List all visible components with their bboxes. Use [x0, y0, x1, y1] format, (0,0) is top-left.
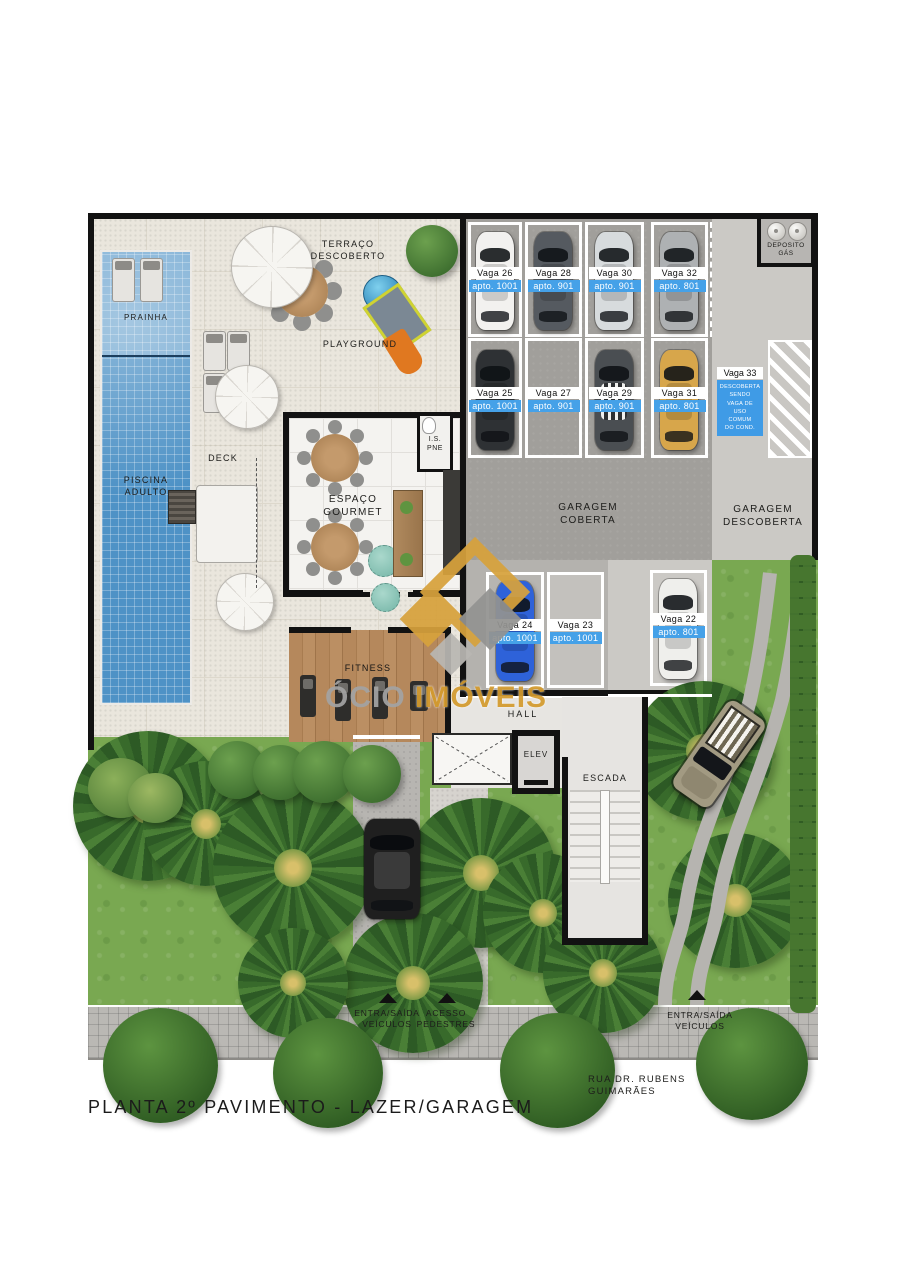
stair-wall-bottom — [562, 938, 648, 945]
exercise-bench — [410, 681, 428, 711]
parking-spot-29: Vaga 29apto. 901 — [585, 338, 644, 458]
spot-apartment: apto. 801 — [654, 280, 706, 292]
spot-apartment: apto. 1001 — [550, 632, 602, 644]
spot-apartment: apto. 901 — [528, 400, 580, 412]
gourmet-table — [311, 523, 359, 571]
spot-number: Vaga 32 — [654, 267, 706, 279]
spot-apartment: apto. 1001 — [489, 632, 541, 644]
bush — [343, 745, 401, 803]
is-pne-label: I.S. PNE — [417, 435, 453, 453]
pedestrian-entry-arrow — [438, 993, 456, 1003]
coberta-descoberta-boundary — [710, 222, 712, 337]
stair-wall-right — [642, 697, 648, 945]
spot-number: Vaga 23 — [550, 619, 602, 631]
counter-plant — [400, 553, 413, 566]
treadmill — [372, 677, 388, 719]
stair-rail — [600, 790, 610, 884]
spot-number: Vaga 31 — [654, 387, 706, 399]
gas-cylinder — [788, 222, 807, 241]
spot-number: Vaga 28 — [528, 267, 580, 279]
elevator: ELEV — [512, 730, 560, 794]
parking-spot-27: Vaga 27apto. 901 — [525, 338, 582, 458]
playground-label: PLAYGROUND — [300, 339, 420, 351]
vaga33-body: DESCOBERTA SENDO VAGA DE USO COMUM DO CO… — [717, 380, 763, 436]
fitness-wall-top-left — [289, 627, 351, 633]
umbrella — [215, 365, 279, 429]
toilet — [422, 417, 436, 434]
gas-cylinder — [767, 222, 786, 241]
tree — [406, 225, 458, 277]
gourmet-table — [311, 434, 359, 482]
pool-lounger — [112, 258, 135, 302]
floor-plan: PRAINHA PISCINA ADULTO ESPAÇO GOURMET I.… — [88, 213, 818, 1056]
gourmet-wall-left — [283, 412, 289, 597]
parking-spot-32: Vaga 32apto. 801 — [651, 222, 708, 337]
gourmet-wall-bottom-right — [413, 590, 460, 597]
pool-lounger — [140, 258, 163, 302]
spot-apartment: apto. 901 — [528, 280, 580, 292]
pool-divider — [102, 355, 190, 357]
parking-spot-30: Vaga 30apto. 901 — [585, 222, 644, 337]
spot-number: Vaga 24 — [489, 619, 541, 631]
spot-apartment: apto. 801 — [653, 626, 705, 638]
veiculos-dir-label: ENTRA/SAÍDA VEÍCULOS — [650, 1010, 750, 1032]
garagem-coberta-label: GARAGEM COBERTA — [543, 501, 633, 527]
spot-number: Vaga 22 — [653, 613, 705, 625]
parking-spot-26: Vaga 26apto. 1001 — [468, 222, 522, 337]
fitness-wall-top-right — [388, 627, 445, 633]
palm-tree — [213, 788, 373, 948]
parking-spot-23: Vaga 23apto. 1001 — [547, 572, 604, 688]
hall-label: HALL — [498, 709, 548, 721]
kitchen-counter — [443, 470, 460, 575]
stair-wall-left — [562, 757, 568, 945]
pedestres-label: ACESSO PEDESTRES — [401, 1008, 491, 1030]
prainha-label: PRAINHA — [100, 313, 192, 323]
garage-gate-line — [353, 735, 420, 739]
pouf-table — [371, 583, 400, 612]
hedge-right — [790, 555, 816, 1013]
street-name: RUA DR. RUBENS GUIMARÃES — [588, 1074, 753, 1099]
hatched-area — [768, 340, 812, 458]
spot-number: Vaga 25 — [469, 387, 521, 399]
parking-spot-25: Vaga 25apto. 1001 — [468, 338, 522, 458]
fitness-wall-right — [445, 627, 451, 742]
parking-spot-24: Vaga 24apto. 1001 — [486, 572, 544, 688]
deposito-gas-label: DEPOSITO GÁS — [761, 242, 811, 259]
parking-spot-31: Vaga 31apto. 801 — [651, 338, 708, 458]
parking-spot-28: Vaga 28apto. 901 — [525, 222, 582, 337]
gourmet-wall-bottom — [283, 590, 363, 597]
garagem-descoberta-label: GARAGEM DESCOBERTA — [713, 503, 813, 529]
spot-number: Vaga 26 — [469, 267, 521, 279]
shaft-box — [432, 733, 512, 785]
treadmill — [335, 679, 351, 721]
deck-label: DECK — [193, 453, 253, 465]
elevator-door — [524, 780, 548, 785]
spot-apartment: apto. 901 — [589, 400, 641, 412]
car-driveway — [364, 819, 420, 919]
vehicle-entry-arrow-right — [688, 990, 706, 1000]
spot-number: Vaga 29 — [589, 387, 641, 399]
deck-expansion-joint — [256, 458, 257, 588]
vaga33-sign: Vaga 33 DESCOBERTA SENDO VAGA DE USO COM… — [717, 367, 763, 436]
escada-label: ESCADA — [562, 773, 648, 785]
wall-top — [88, 213, 818, 219]
treadmill — [300, 675, 316, 717]
vaga33-header: Vaga 33 — [717, 367, 763, 379]
deck-lounger — [203, 331, 226, 371]
spot-apartment: apto. 901 — [589, 280, 641, 292]
spot-apartment: apto. 1001 — [469, 400, 521, 412]
stair-building: ESCADA — [562, 697, 648, 945]
vehicle-entry-arrow-left — [379, 993, 397, 1003]
espaco-gourmet-label: ESPAÇO GOURMET — [298, 493, 408, 519]
spot-number: Vaga 30 — [589, 267, 641, 279]
spot-number: Vaga 27 — [528, 387, 580, 399]
fern-bed — [128, 773, 183, 823]
elev-label: ELEV — [518, 750, 554, 760]
sheet-title: PLANTA 2º PAVIMENTO - LAZER/GARAGEM — [88, 1096, 568, 1119]
wall-garage-divider — [460, 213, 466, 697]
fitness-label: FITNESS — [328, 663, 408, 675]
spot-apartment: apto. 1001 — [469, 280, 521, 292]
piscina-adulto-label: PISCINA ADULTO — [100, 475, 192, 498]
terraco-label: TERRAÇO DESCOBERTO — [288, 239, 408, 262]
wall-left — [88, 213, 94, 750]
spot-apartment: apto. 801 — [654, 400, 706, 412]
umbrella — [216, 573, 274, 631]
daybed — [196, 485, 258, 563]
gas-storage-room: DEPOSITO GÁS — [757, 215, 815, 267]
